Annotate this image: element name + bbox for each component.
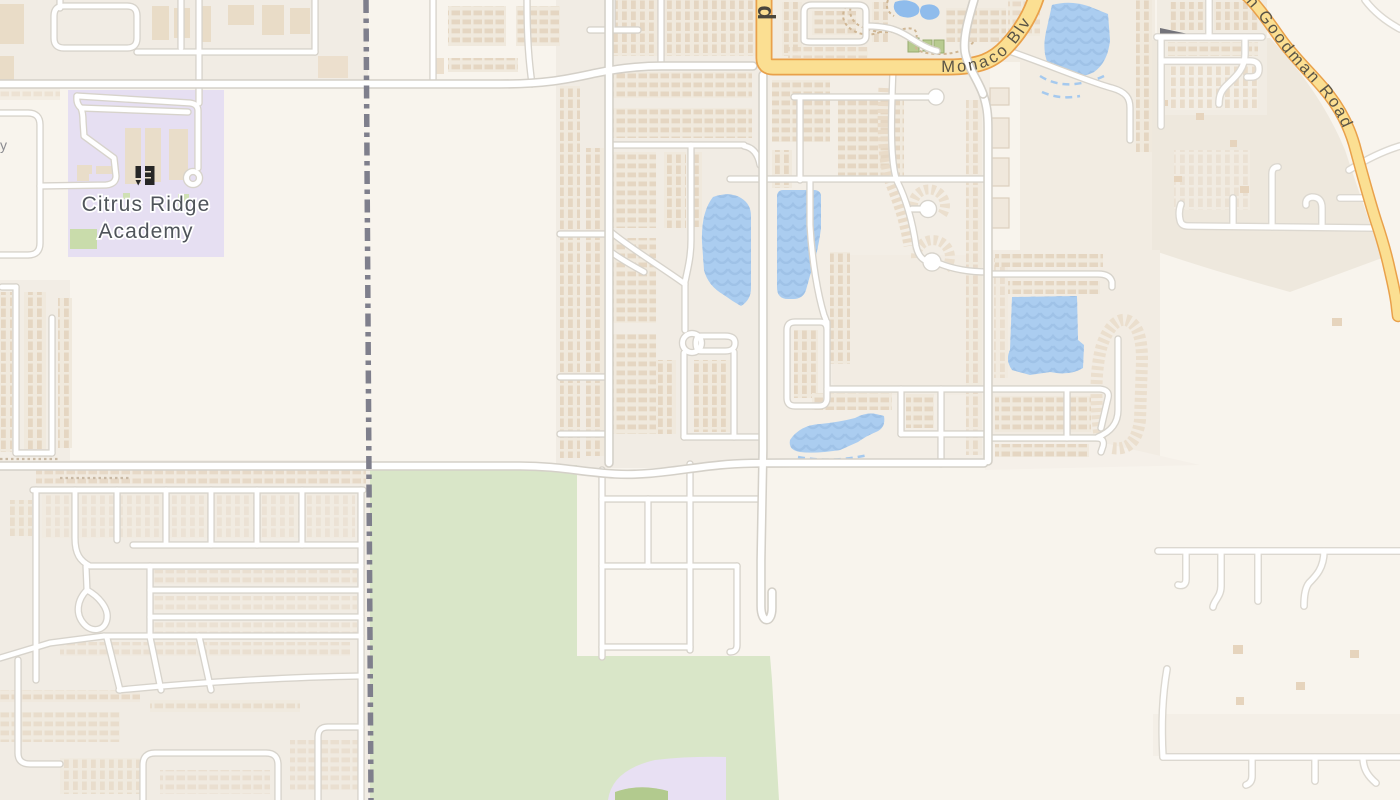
svg-text:Academy: Academy [98, 220, 193, 243]
svg-text:y: y [0, 137, 7, 153]
svg-text:Citrus Ridge: Citrus Ridge [82, 193, 211, 216]
svg-text:p: p [750, 5, 777, 20]
